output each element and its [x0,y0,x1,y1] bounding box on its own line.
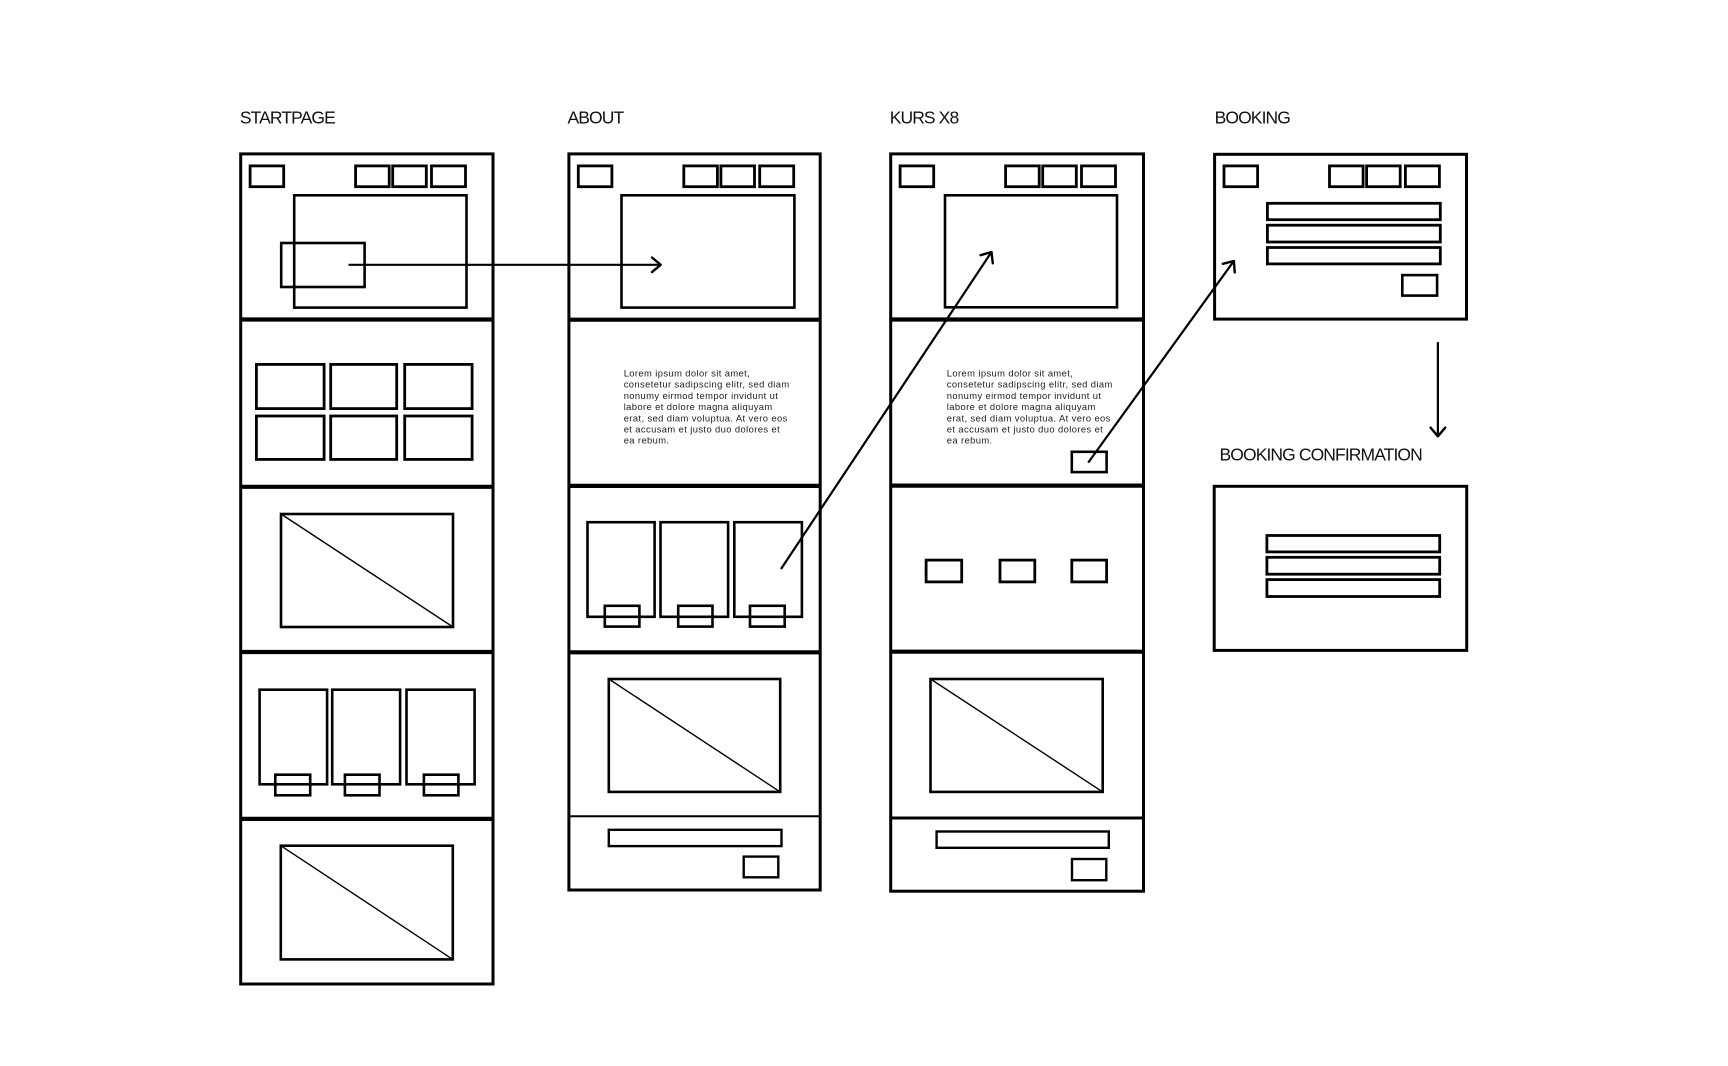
svg-text:KURS X8: KURS X8 [890,107,959,127]
svg-text:Lorem ipsum dolor sit amet,con: Lorem ipsum dolor sit amet,consetetur sa… [624,368,790,446]
svg-text:STARTPAGE: STARTPAGE [240,107,335,127]
svg-text:BOOKING: BOOKING [1215,107,1291,127]
svg-text:BOOKING CONFIRMATION: BOOKING CONFIRMATION [1220,444,1423,464]
svg-text:ABOUT: ABOUT [568,107,625,127]
svg-text:Lorem ipsum dolor sit amet,con: Lorem ipsum dolor sit amet,consetetur sa… [947,368,1113,446]
